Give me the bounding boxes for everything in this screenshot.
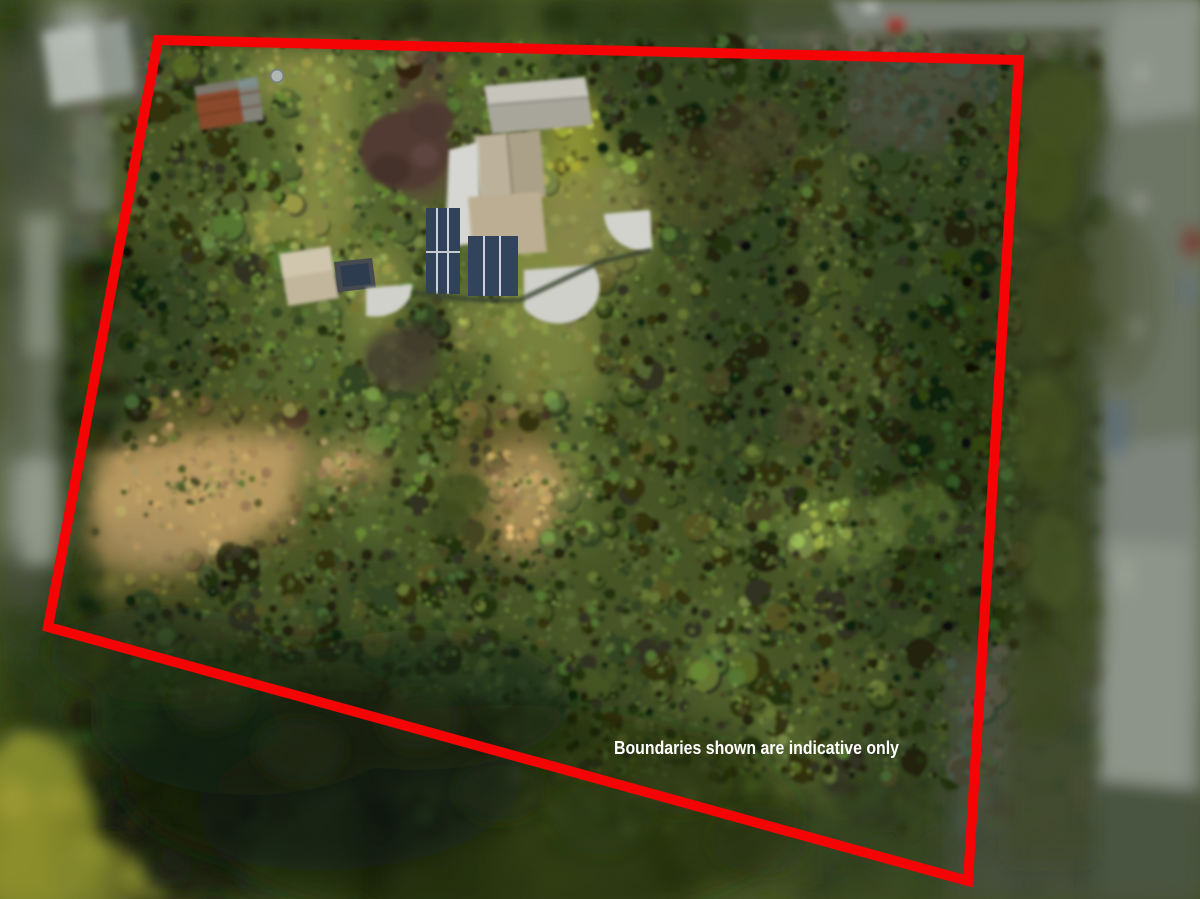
svg-text:Boundaries shown are indicativ: Boundaries shown are indicative only [614, 737, 900, 758]
